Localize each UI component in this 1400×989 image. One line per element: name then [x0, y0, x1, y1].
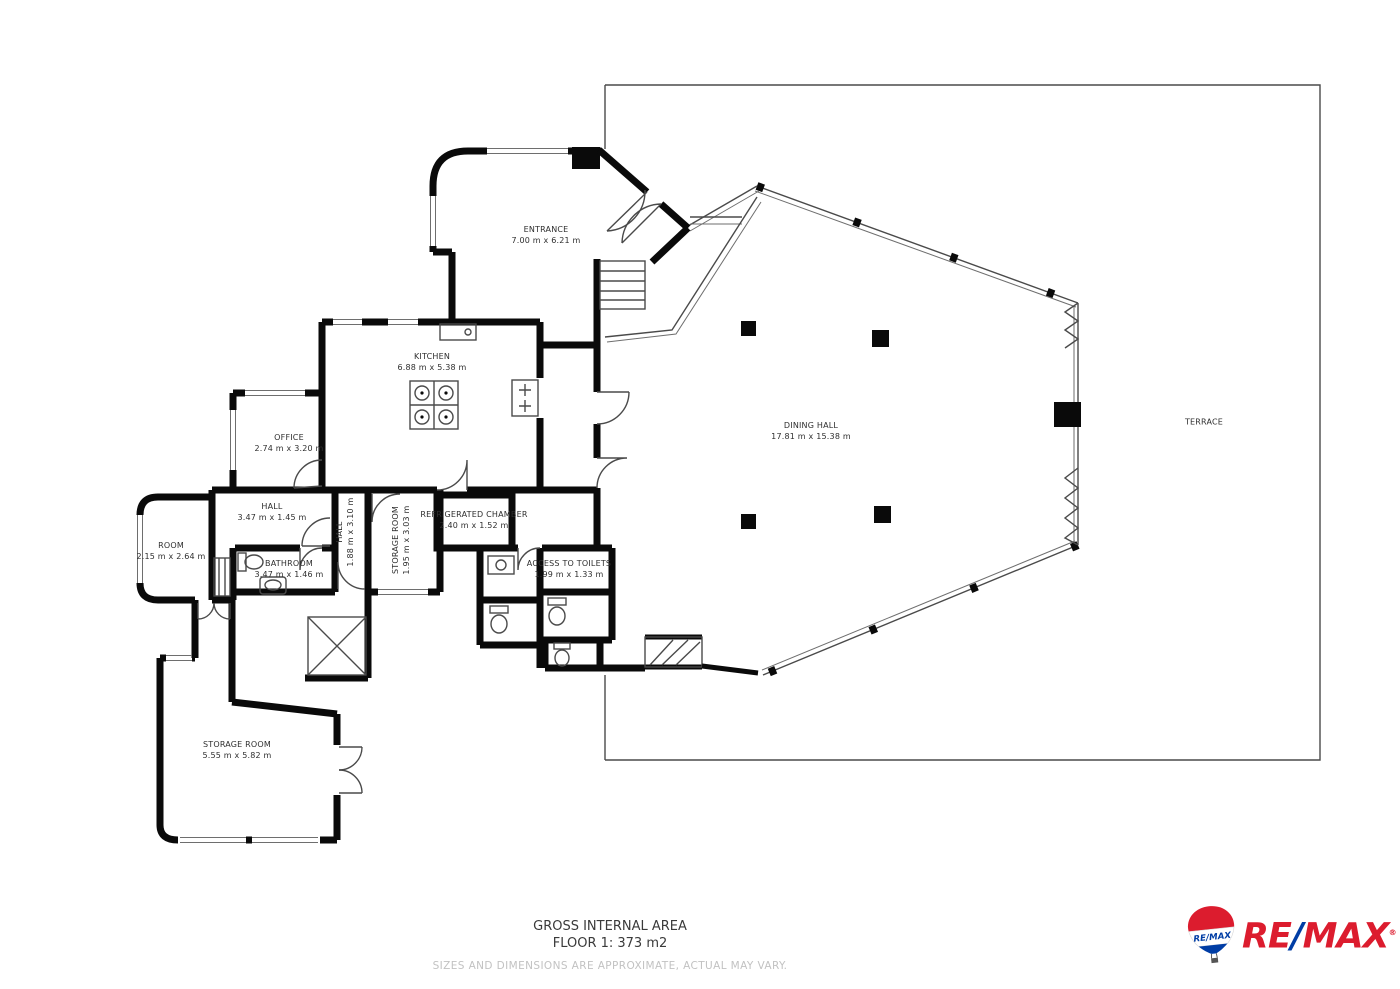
room-label-room: ROOM 2.15 m x 2.64 m [136, 540, 205, 562]
room-name: BATHROOM [254, 558, 323, 569]
room-name: KITCHEN [397, 351, 466, 362]
room-label-office: OFFICE 2.74 m x 3.20 m [254, 432, 323, 454]
room-dims: 1.99 m x 1.33 m [527, 569, 611, 580]
room-label-bathroom: BATHROOM 3.47 m x 1.46 m [254, 558, 323, 580]
room-dims: 17.81 m x 15.38 m [771, 431, 851, 442]
remax-balloon-icon: RE/MAX [1183, 901, 1241, 968]
remax-wordmark: RE/MAX® [1242, 903, 1396, 967]
wordmark-max: MAX [1303, 917, 1389, 957]
area-value: FLOOR 1: 373 m2 [533, 935, 687, 952]
gross-internal-area: GROSS INTERNAL AREA FLOOR 1: 373 m2 [533, 918, 687, 952]
registered-mark: ® [1389, 928, 1396, 937]
room-dims: 7.00 m x 6.21 m [511, 235, 580, 246]
room-name: ROOM [136, 540, 205, 551]
stairs [600, 261, 645, 309]
remax-logo: RE/MAX RE/MAX® [1186, 903, 1351, 967]
room-dims: 6.88 m x 5.38 m [397, 362, 466, 373]
room-label-access-to-toilets: ACCESS TO TOILETS 1.99 m x 1.33 m [527, 558, 611, 580]
wordmark-slash: / [1291, 917, 1303, 957]
floorplan-page: ENTRANCE 7.00 m x 6.21 m KITCHEN 6.88 m … [0, 0, 1400, 989]
room-dims: 5.55 m x 5.82 m [202, 750, 271, 761]
room-name: STORAGE ROOM [390, 505, 401, 574]
room-name: STORAGE ROOM [202, 739, 271, 750]
room-label-hall: HALL 3.47 m x 1.45 m [237, 501, 306, 523]
floorplan-drawing [0, 0, 1400, 989]
disclaimer-text: SIZES AND DIMENSIONS ARE APPROXIMATE, AC… [433, 960, 788, 972]
room-label-dining-hall: DINING HALL 17.81 m x 15.38 m [771, 420, 851, 442]
room-dims: 2.15 m x 2.64 m [136, 551, 205, 562]
room-name: OFFICE [254, 432, 323, 443]
room-label-kitchen: KITCHEN 6.88 m x 5.38 m [397, 351, 466, 373]
room-label-refrigerated-chamber: REFRIGERATED CHAMBER 2.40 m x 1.52 m [420, 509, 527, 531]
room-name: HALL [334, 497, 345, 566]
fixtures [214, 324, 570, 675]
room-name: TERRACE [1185, 417, 1223, 428]
room-label-storage-bottom: STORAGE ROOM 5.55 m x 5.82 m [202, 739, 271, 761]
void-x-box [308, 617, 366, 675]
wordmark-re: RE [1242, 917, 1291, 957]
room-label-terrace: TERRACE [1185, 417, 1223, 428]
room-name: REFRIGERATED CHAMBER [420, 509, 527, 520]
room-name: ENTRANCE [511, 224, 580, 235]
room-label-hall-vertical: HALL 1.88 m x 3.10 m [334, 497, 356, 566]
room-label-entrance: ENTRANCE 7.00 m x 6.21 m [511, 224, 580, 246]
room-name: DINING HALL [771, 420, 851, 431]
walls [140, 150, 688, 840]
room-dims: 3.47 m x 1.45 m [237, 512, 306, 523]
room-label-storage-mid: STORAGE ROOM 1.95 m x 3.03 m [390, 505, 412, 574]
pillars [572, 147, 1081, 529]
room-dims: 2.74 m x 3.20 m [254, 443, 323, 454]
room-name: HALL [237, 501, 306, 512]
room-dims: 2.40 m x 1.52 m [420, 520, 527, 531]
room-dims: 1.95 m x 3.03 m [401, 505, 412, 574]
room-name: ACCESS TO TOILETS [527, 558, 611, 569]
room-dims: 1.88 m x 3.10 m [345, 497, 356, 566]
stove-icon [410, 381, 458, 429]
room-dims: 3.47 m x 1.46 m [254, 569, 323, 580]
vent-hatch [645, 637, 758, 673]
area-title: GROSS INTERNAL AREA [533, 918, 687, 935]
